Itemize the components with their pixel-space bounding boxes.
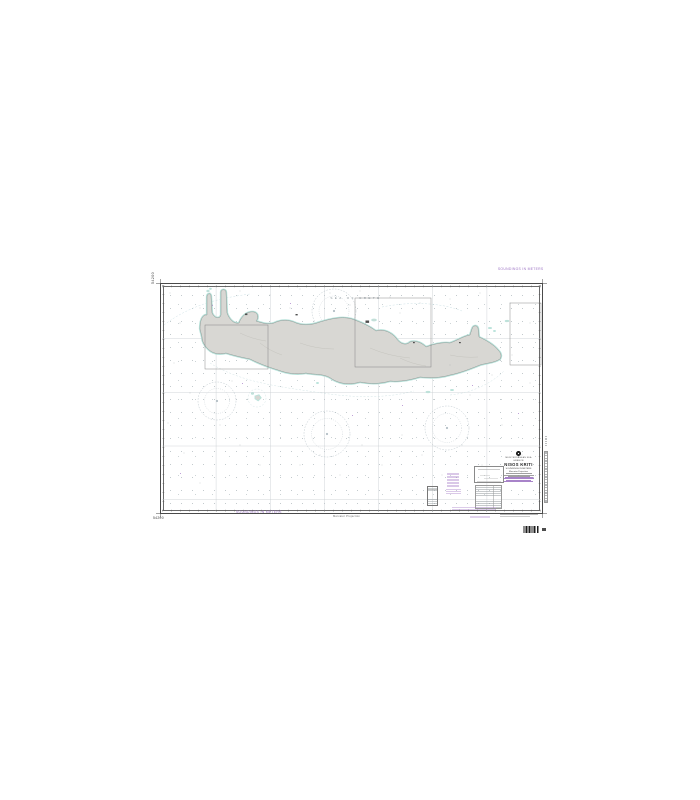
notes-mini-table: [427, 486, 438, 506]
magenta-note-block: [447, 473, 459, 487]
title-block: MEDITERRANEAN SEA GREECE NISOS KRITI SOU…: [500, 451, 537, 481]
islet-dia: [372, 319, 377, 321]
islet-chrysi: [426, 391, 430, 392]
magenta-footnote-lines: [452, 507, 496, 510]
compass-rose: [425, 406, 469, 450]
islet-gavdos: [255, 395, 261, 401]
soundings-note-bottom: SOUNDINGS IN METERS: [236, 510, 282, 514]
island-crete: [200, 290, 501, 384]
nautical-chart: SOUNDINGS IN METERS: [150, 263, 554, 539]
stock-number-tag: [542, 528, 547, 531]
product-photo: SOUNDINGS IN METERS: [0, 0, 700, 800]
title-projection-line: Mercator Projection: [500, 471, 537, 473]
sea-name-label: SEA OF CRETE: [315, 296, 397, 300]
agency-seal-icon: [516, 451, 521, 456]
landmass: [200, 290, 501, 384]
chart-number-bottomleft: 54200: [153, 516, 164, 520]
title-soundings-line: SOUNDINGS IN METERS: [500, 468, 537, 470]
chart-title: NISOS KRITI: [500, 462, 537, 467]
chart-number-topleft: 54200: [151, 272, 155, 284]
legend-table: [475, 485, 502, 509]
edge-label-strip-small: [545, 436, 548, 446]
title-magenta-note-line: [504, 481, 533, 482]
barcode: [523, 526, 539, 533]
source-diagram: [474, 466, 504, 483]
title-country-line: GREECE: [500, 460, 537, 462]
magenta-note-lines: [446, 489, 461, 495]
projection-note: Mercator Projection: [333, 515, 360, 518]
edge-label-strip: [544, 451, 548, 503]
magenta-margin-note: [470, 516, 490, 519]
edition-fine-print: [500, 514, 540, 518]
compass-rose: [198, 382, 236, 420]
compass-rose: [304, 411, 350, 457]
title-region-line: MEDITERRANEAN SEA: [500, 457, 537, 459]
